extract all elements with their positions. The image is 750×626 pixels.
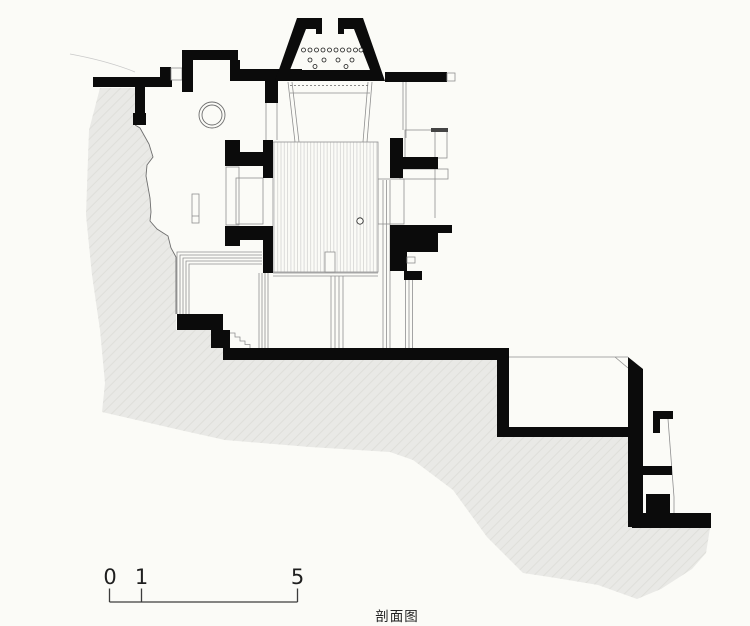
stair-base-bar: [632, 513, 711, 528]
right-roof-tip-box: [447, 73, 455, 81]
left-roof-gap-box: [171, 68, 182, 80]
chimney-top-notch: [322, 16, 338, 30]
left-roof-step: [160, 67, 171, 77]
bench-outline: [192, 194, 199, 223]
central-room: [273, 142, 378, 272]
stair-step-block: [646, 494, 670, 513]
left-roof-slab: [93, 77, 172, 87]
lower-room-wall-right: [628, 357, 643, 527]
left-entry-wall: [135, 87, 145, 113]
right-floor-slab: [390, 157, 438, 169]
section-drawing: 0 1 5 剖面图: [0, 0, 750, 626]
room-wall-lower-left: [263, 226, 273, 273]
scale-label-5: 5: [291, 565, 304, 589]
stair-landing: [640, 466, 672, 475]
lower-room-wall-left: [497, 348, 509, 437]
right-wall-box: [407, 257, 415, 263]
terrace-step-2: [211, 330, 230, 348]
terrace-step-1: [177, 314, 223, 330]
left-entry-footing: [133, 113, 146, 125]
right-roof-slab: [385, 72, 447, 82]
room-door-notch: [325, 252, 335, 272]
room-fixture-circle: [357, 218, 363, 224]
main-ground-slab: [223, 348, 508, 360]
lower-room-floor-slab: [497, 427, 633, 437]
drawing-caption: 剖面图: [375, 609, 419, 625]
left-hanging-wall: [265, 81, 278, 103]
balcony-tick: [431, 128, 448, 132]
scale-label-0: 0: [103, 565, 116, 589]
scale-label-1: 1: [135, 565, 148, 589]
